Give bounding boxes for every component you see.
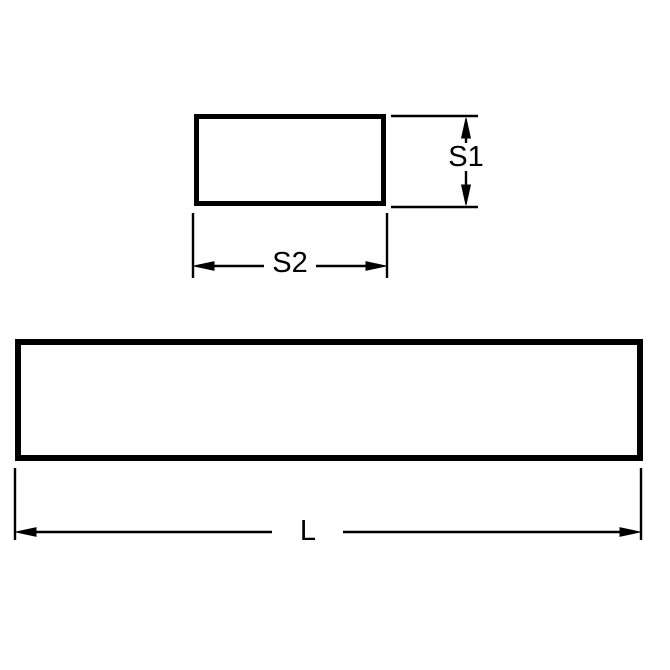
s1-arrowhead-up (462, 118, 471, 138)
s1-arrowhead-down (462, 185, 471, 205)
length-dimension-label: L (300, 515, 316, 547)
side-view-rect (18, 342, 640, 458)
cross-section-rect (197, 117, 384, 204)
diagram-canvas: S1 S2 (0, 0, 670, 670)
s2-dimension-label: S2 (272, 247, 307, 279)
side-view: L (15, 342, 641, 547)
keystock-dimension-diagram: S1 S2 (0, 0, 670, 670)
cross-section-view: S1 S2 (193, 116, 484, 279)
length-arrowhead-right (620, 528, 640, 536)
length-dimension: L (15, 468, 641, 547)
s1-dimension-label: S1 (448, 141, 483, 173)
s2-arrowhead-right (366, 262, 386, 270)
s1-dimension: S1 (391, 116, 484, 207)
length-arrowhead-left (16, 528, 36, 536)
s2-arrowhead-left (194, 262, 214, 270)
s2-dimension: S2 (193, 213, 387, 279)
